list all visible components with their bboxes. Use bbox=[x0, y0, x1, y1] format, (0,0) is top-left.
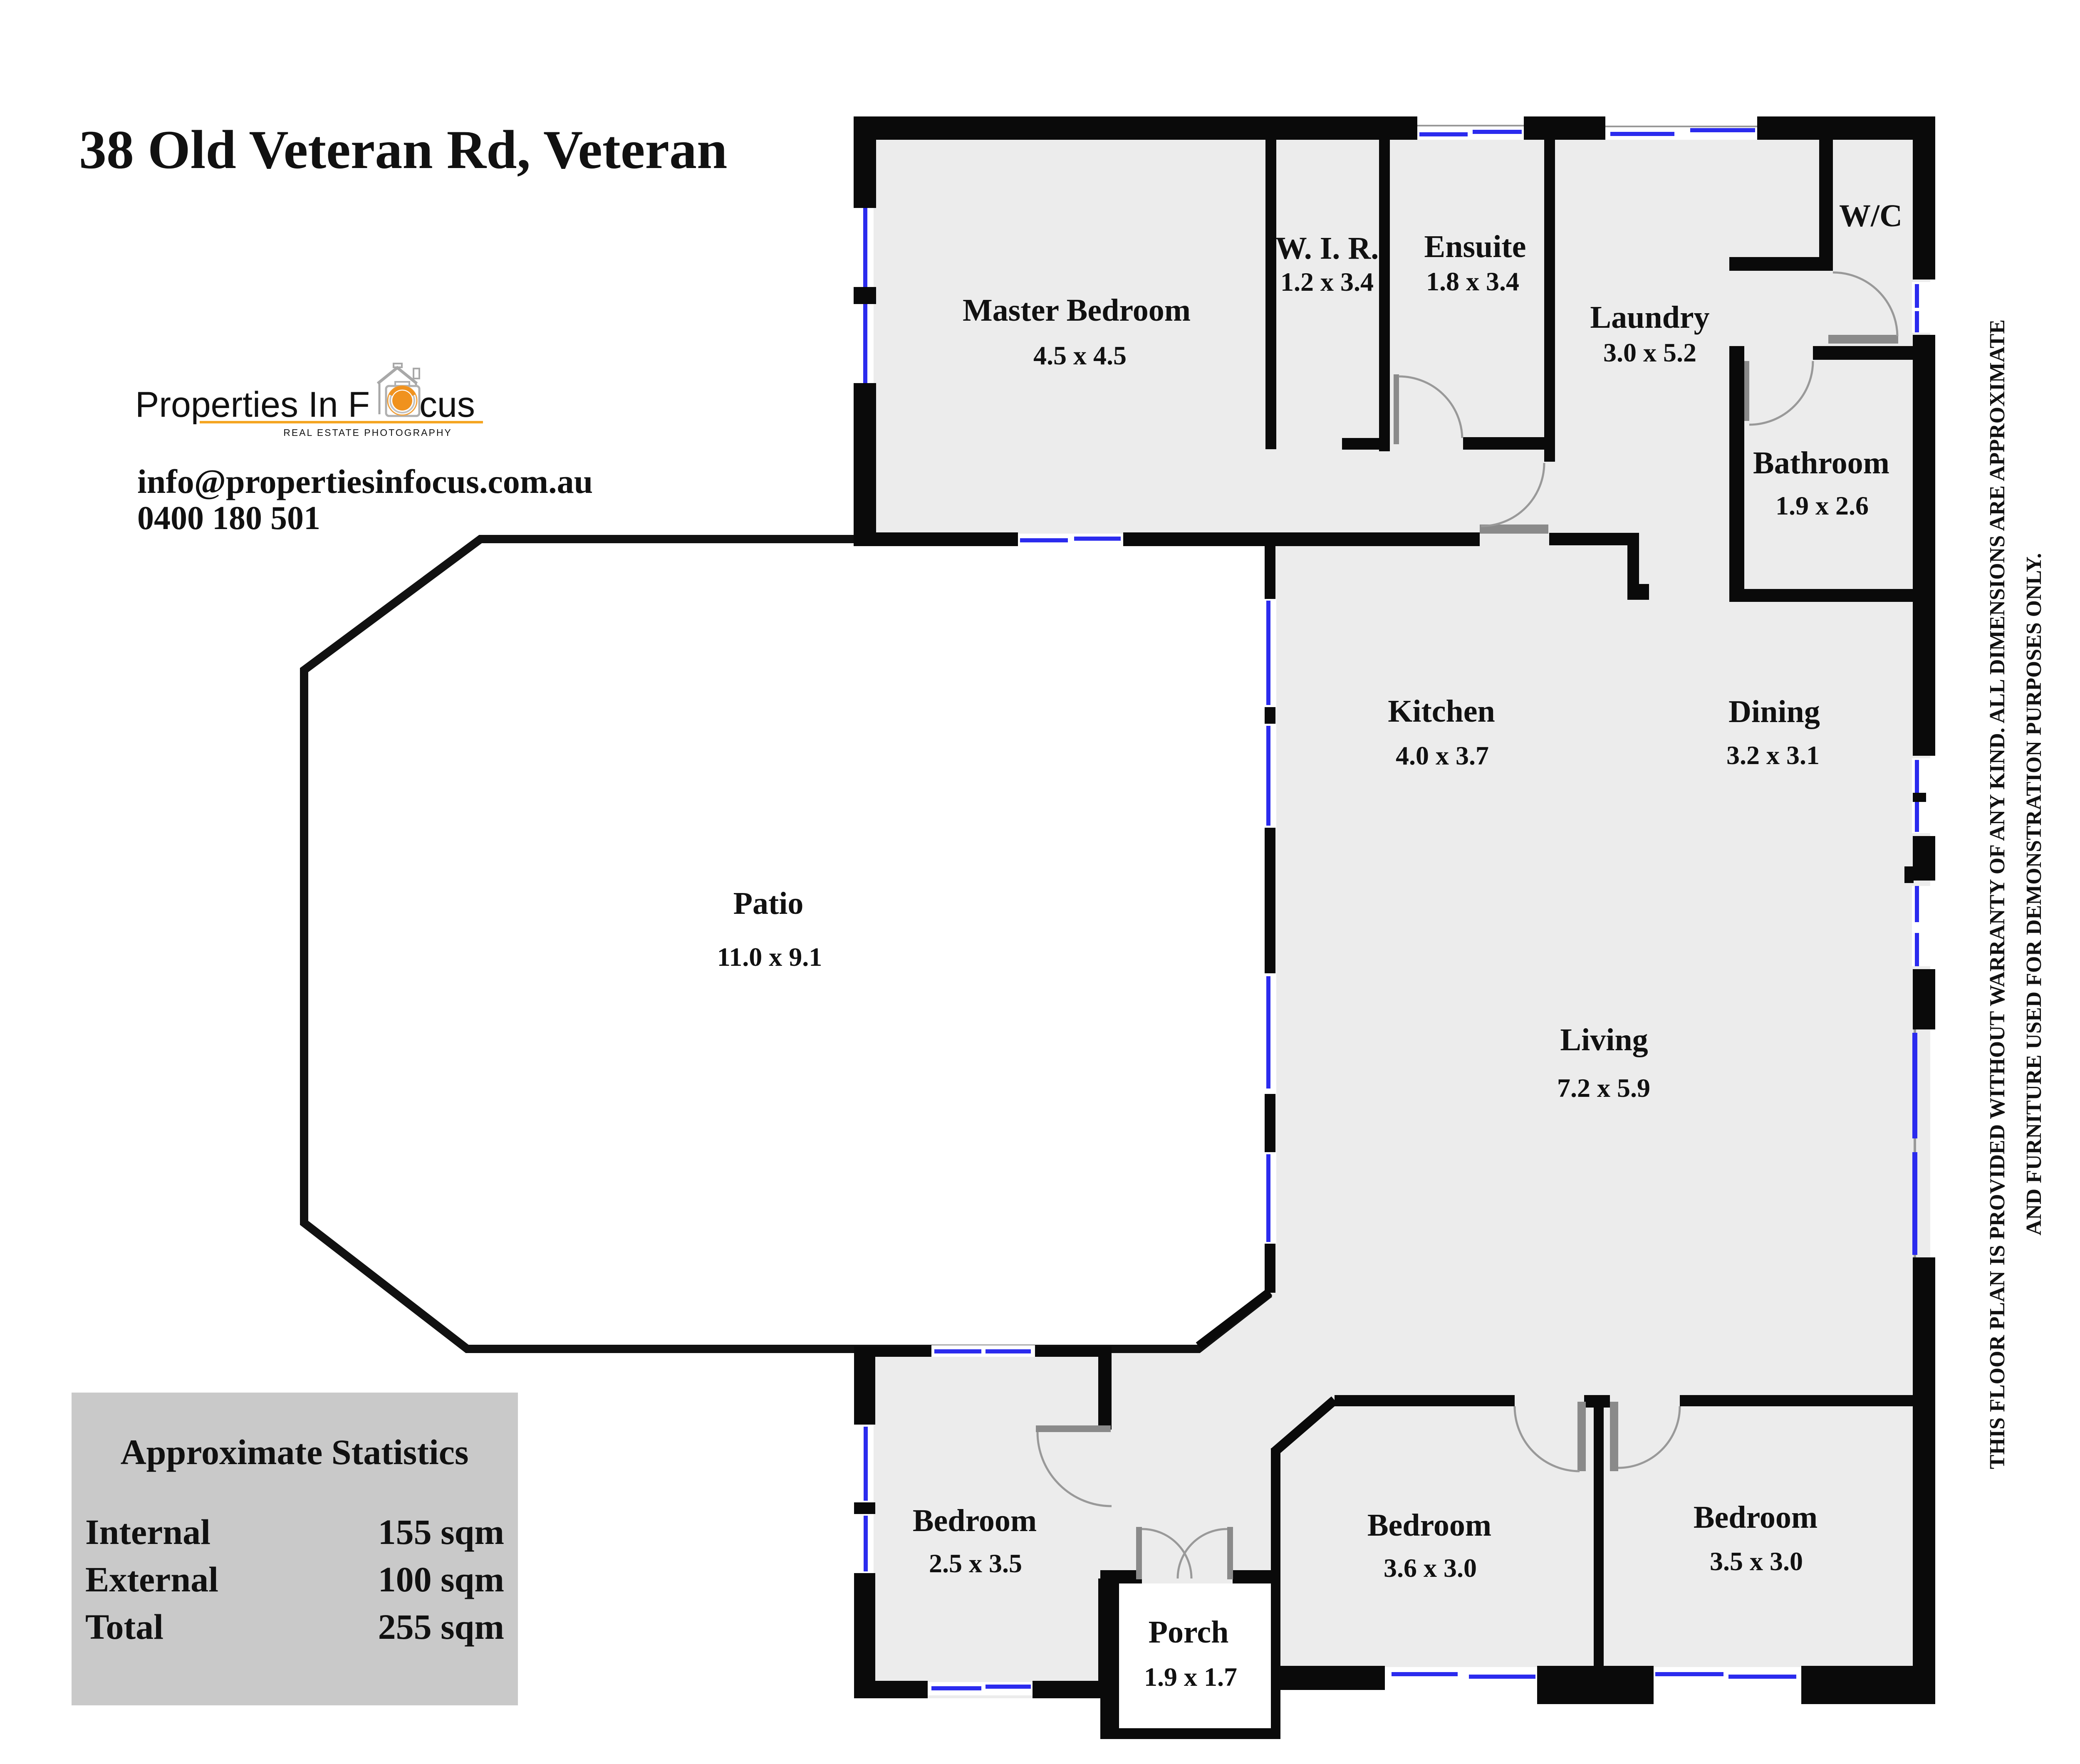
svg-text:100 sqm: 100 sqm bbox=[378, 1559, 504, 1599]
svg-text:Total: Total bbox=[85, 1607, 163, 1647]
svg-text:Porch: Porch bbox=[1149, 1615, 1229, 1650]
svg-text:4.0 x 3.7: 4.0 x 3.7 bbox=[1396, 741, 1489, 770]
svg-text:cus: cus bbox=[419, 385, 475, 425]
svg-text:3.6 x 3.0: 3.6 x 3.0 bbox=[1384, 1553, 1477, 1583]
svg-text:Bathroom: Bathroom bbox=[1753, 445, 1889, 480]
svg-text:11.0 x 9.1: 11.0 x 9.1 bbox=[717, 942, 822, 972]
svg-text:1.9 x 1.7: 1.9 x 1.7 bbox=[1144, 1662, 1237, 1692]
svg-text:1.8 x 3.4: 1.8 x 3.4 bbox=[1426, 267, 1519, 296]
svg-text:Patio: Patio bbox=[733, 886, 804, 921]
svg-text:Master Bedroom: Master Bedroom bbox=[963, 293, 1191, 328]
svg-text:Living: Living bbox=[1560, 1022, 1648, 1057]
svg-text:Approximate Statistics: Approximate Statistics bbox=[121, 1432, 469, 1472]
svg-text:3.2 x 3.1: 3.2 x 3.1 bbox=[1726, 740, 1820, 770]
svg-text:2.5 x 3.5: 2.5 x 3.5 bbox=[929, 1549, 1022, 1578]
svg-text:38 Old Veteran Rd, Veteran: 38 Old Veteran Rd, Veteran bbox=[79, 119, 727, 180]
svg-text:THIS FLOOR PLAN IS PROVIDED WI: THIS FLOOR PLAN IS PROVIDED WITHOUT WARR… bbox=[1986, 319, 2009, 1469]
svg-text:External: External bbox=[85, 1559, 218, 1599]
svg-text:Laundry: Laundry bbox=[1590, 300, 1709, 335]
svg-text:155 sqm: 155 sqm bbox=[378, 1512, 504, 1552]
svg-text:Dining: Dining bbox=[1728, 694, 1820, 729]
svg-text:AND FURNITURE USED FOR DEMONST: AND FURNITURE USED FOR DEMONSTRATION PUR… bbox=[2022, 553, 2046, 1236]
svg-text:info@propertiesinfocus.com.au: info@propertiesinfocus.com.au bbox=[137, 463, 593, 500]
svg-text:REAL ESTATE PHOTOGRAPHY: REAL ESTATE PHOTOGRAPHY bbox=[283, 427, 452, 438]
svg-text:Kitchen: Kitchen bbox=[1388, 694, 1495, 729]
svg-text:1.9 x 2.6: 1.9 x 2.6 bbox=[1775, 491, 1869, 520]
svg-text:0400 180 501: 0400 180 501 bbox=[137, 500, 320, 537]
svg-text:255 sqm: 255 sqm bbox=[378, 1607, 504, 1647]
svg-text:3.0 x 5.2: 3.0 x 5.2 bbox=[1603, 338, 1696, 367]
svg-text:Properties In F: Properties In F bbox=[135, 385, 370, 425]
svg-text:Bedroom: Bedroom bbox=[1694, 1500, 1818, 1535]
svg-text:Internal: Internal bbox=[85, 1512, 210, 1552]
svg-text:Bedroom: Bedroom bbox=[913, 1503, 1037, 1538]
svg-text:W/C: W/C bbox=[1839, 198, 1902, 233]
svg-text:1.2 x 3.4: 1.2 x 3.4 bbox=[1280, 267, 1374, 297]
svg-text:7.2 x 5.9: 7.2 x 5.9 bbox=[1557, 1073, 1650, 1103]
svg-text:3.5 x 3.0: 3.5 x 3.0 bbox=[1710, 1546, 1803, 1576]
svg-text:4.5 x 4.5: 4.5 x 4.5 bbox=[1033, 341, 1127, 370]
svg-text:Bedroom: Bedroom bbox=[1367, 1508, 1491, 1543]
svg-text:W. I. R.: W. I. R. bbox=[1275, 231, 1379, 266]
svg-text:Ensuite: Ensuite bbox=[1424, 229, 1526, 264]
